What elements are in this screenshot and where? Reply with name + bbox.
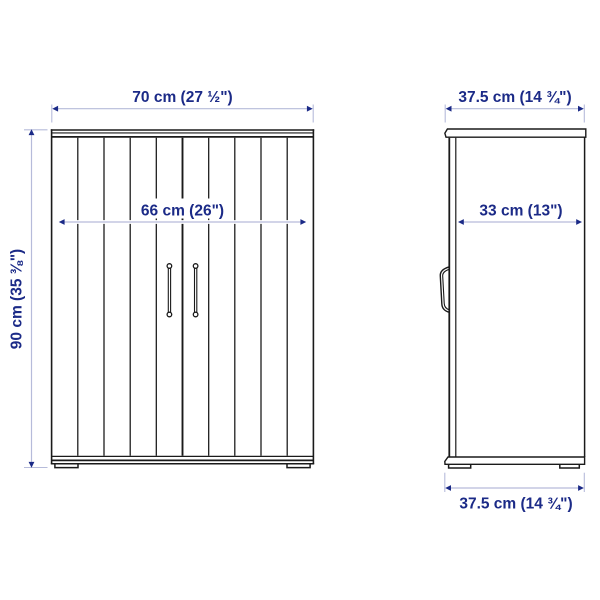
svg-text:33 cm (13"): 33 cm (13") [479,203,562,220]
svg-text:70 cm (27 ½"): 70 cm (27 ½") [132,89,232,106]
svg-text:37.5 cm (14 ¾"): 37.5 cm (14 ¾") [458,89,571,106]
svg-text:66 cm (26"): 66 cm (26") [141,203,224,220]
svg-text:37.5 cm (14 ¾"): 37.5 cm (14 ¾") [459,496,572,513]
svg-text:90 cm (35 ⅜"): 90 cm (35 ⅜") [9,249,26,349]
